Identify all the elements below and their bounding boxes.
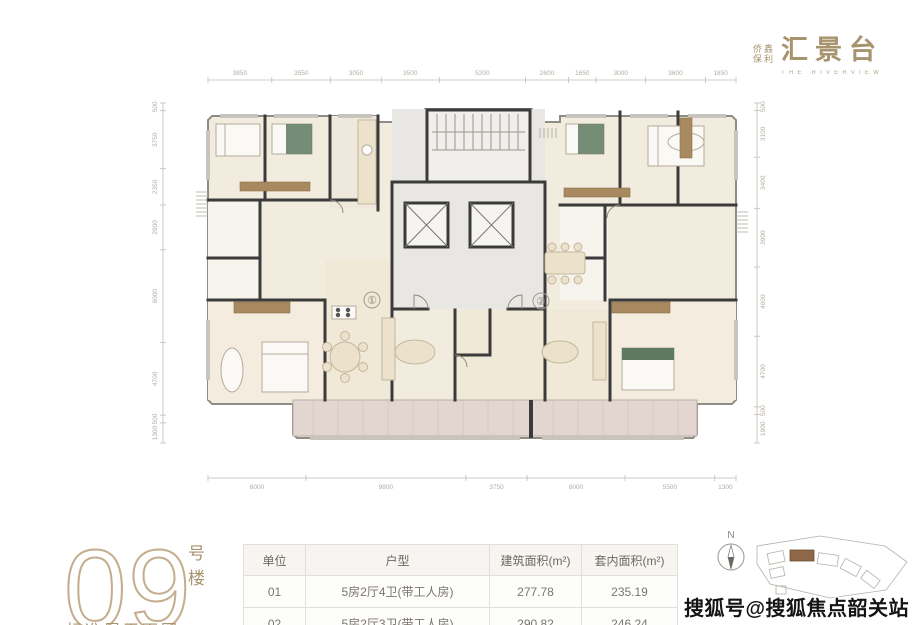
dimension-label: 3500	[403, 70, 418, 77]
dimension-label: 3750	[489, 484, 504, 491]
building-number: 09	[64, 536, 264, 625]
dimension-label: 3550	[294, 70, 309, 77]
table-header-cell: 户型	[306, 545, 490, 576]
site-plan-sketch	[757, 536, 907, 598]
table-cell: 277.78	[490, 576, 582, 608]
dimension-label: 3850	[233, 70, 248, 77]
table-cell: 01	[244, 576, 306, 608]
dimension-label: 1300	[718, 484, 733, 491]
dimension-label: 6000	[152, 289, 159, 304]
unit-spec-table: 单位户型建筑面积(m²)套内面积(m²) 015房2厅4卫(带工人房)277.7…	[243, 544, 678, 625]
dimension-label: 9800	[379, 484, 394, 491]
staircase-icon	[427, 110, 530, 182]
dimension-label: 3400	[760, 175, 767, 190]
compass-icon: N	[718, 530, 744, 570]
dimension-label: 1850	[713, 70, 728, 77]
dimension-label: 3050	[349, 70, 364, 77]
dimension-label: 2350	[152, 179, 159, 194]
dimension-label: 6000	[250, 484, 265, 491]
dimension-label: 3000	[614, 70, 629, 77]
dimension-label: 4700	[760, 364, 767, 379]
highlighted-building	[790, 550, 814, 561]
table-cell: 290.82	[490, 608, 582, 625]
dimension-label: 1650	[575, 70, 590, 77]
table-cell: 246.24	[582, 608, 678, 625]
dimension-label: 3600	[668, 70, 683, 77]
table-cell: 5房2厅3卫(带工人房)	[306, 608, 490, 625]
dimension-label: 5500	[663, 484, 678, 491]
table-row: 025房2厅3卫(带工人房)290.82246.24	[244, 608, 678, 625]
dimension-label: 500	[152, 101, 159, 112]
dimension-label: 2600	[540, 70, 555, 77]
table-cell: 02	[244, 608, 306, 625]
dimension-label: 1900	[760, 421, 767, 436]
table-header-cell: 套内面积(m²)	[582, 545, 678, 576]
building-number-text: 09	[64, 527, 193, 625]
dimension-label: 3100	[760, 126, 767, 141]
table-cell: 235.19	[582, 576, 678, 608]
compass-label: N	[727, 530, 734, 541]
table-header-cell: 单位	[244, 545, 306, 576]
dimension-label: 3900	[760, 230, 767, 245]
dimension-label: 1300	[152, 425, 159, 440]
watermark: 搜狐号@搜狐焦点韶关站	[684, 592, 909, 621]
table-header-row: 单位户型建筑面积(m²)套内面积(m²)	[244, 545, 678, 576]
dimension-label: 5200	[475, 70, 490, 77]
dimension-label: 500	[152, 413, 159, 424]
dimension-label: 3750	[152, 132, 159, 147]
building-number-suffix: 号楼	[182, 544, 207, 594]
dimension-label: 2900	[152, 220, 159, 235]
dimension-label: 500	[760, 405, 767, 416]
plan-caption: 标准层平面图	[66, 617, 180, 625]
page: 侨鑫 保利 汇景台 THE RIVERVIEW	[0, 0, 923, 625]
building-number-block: 09 号楼	[64, 536, 264, 625]
table-cell: 5房2厅4卫(带工人房)	[306, 576, 490, 608]
dimension-label: 6000	[569, 484, 584, 491]
unit-label-2: ①	[367, 295, 377, 307]
dimension-label: 4700	[152, 371, 159, 386]
table-header-cell: 建筑面积(m²)	[490, 545, 582, 576]
balcony	[293, 400, 697, 438]
dimension-label: 4600	[760, 294, 767, 309]
dimension-label: 500	[760, 101, 767, 112]
unit-label-1: ②	[536, 296, 546, 308]
table-row: 015房2厅4卫(带工人房)277.78235.19	[244, 576, 678, 608]
